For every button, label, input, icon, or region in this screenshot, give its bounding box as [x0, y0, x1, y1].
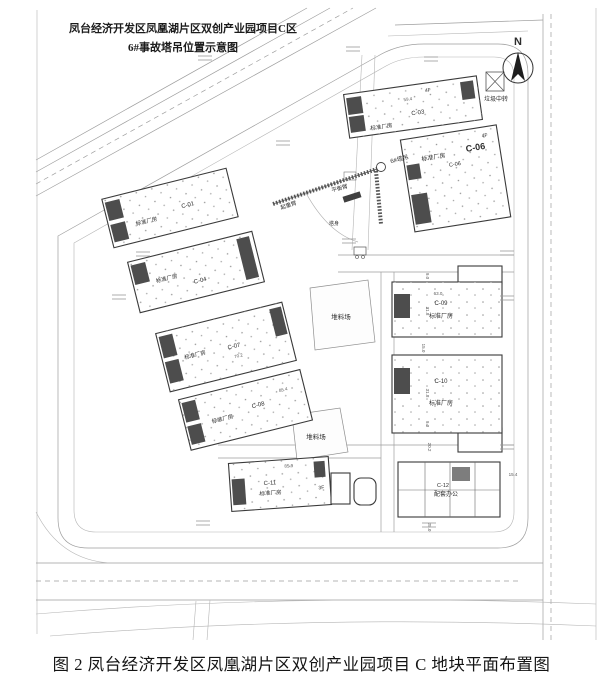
stockyard-upper: 堆料场: [310, 280, 375, 350]
building-c01: 标准厂房 C-01: [102, 168, 238, 247]
stockyard-lower-label: 堆料场: [306, 432, 326, 441]
c10-dim-side: 31.8: [425, 389, 430, 398]
c10-type-label: 标准厂房: [429, 399, 453, 407]
building-c09: C-09 标准厂房 63.0 31.8 9.0: [392, 266, 502, 337]
c10-dim-gap: 15.0: [421, 344, 426, 353]
c11-dim-label: 85.9: [284, 463, 294, 469]
building-c04: 标准厂房 C-04: [128, 231, 265, 312]
plan-title-line2: 6#事故塔吊位置示意图: [62, 39, 304, 58]
c09-dim-side: 31.8: [425, 307, 430, 316]
c09-dim-top: 63.0: [434, 291, 443, 296]
c11-floors-label: 3F: [318, 485, 324, 491]
c09-type-label: 标准厂房: [429, 312, 453, 320]
crane-mast-label: 塔身: [329, 220, 339, 227]
north-label: N: [514, 36, 522, 48]
c09-id-label: C-09: [434, 301, 448, 307]
north-compass: N: [503, 36, 533, 83]
crane-mast: [376, 171, 381, 224]
c11-annex-blocks: [331, 473, 376, 505]
vehicle-marker: [354, 247, 366, 259]
building-c10: C-10 标准厂房 31.8 9.0 15.0: [392, 344, 502, 452]
garbage-transfer-station: 垃圾中转: [484, 72, 508, 103]
stockyard-upper-label: 堆料场: [331, 312, 351, 321]
building-c03: 标准厂房 C-03 59.4 4F: [344, 76, 483, 138]
c12-id-label: C-12: [437, 483, 449, 489]
c09-dim-offset: 9.0: [425, 273, 430, 280]
plan-title-block: 凤台经济开发区凤凰湖片区双创产业园项目C区 6#事故塔吊位置示意图: [62, 20, 304, 59]
site-plan-drawing: 堆料场 堆料场 标准厂房 C-01 标准厂房 C-04: [0, 0, 603, 646]
building-c12: C-12 配套办公 15.4 25.0 20.2: [398, 443, 518, 532]
c06-floors-label: 4F: [481, 132, 488, 139]
c10-id-label: C-10: [434, 379, 448, 385]
garbage-transfer-label: 垃圾中转: [484, 95, 508, 103]
c12-dim-right: 15.4: [509, 472, 518, 477]
crane-counterweight: [343, 191, 362, 202]
building-c06: 标准厂房 C-06 C-06 4F: [400, 125, 510, 232]
c10-dim-offset: 9.0: [425, 421, 430, 428]
c11-id-label: C-11: [263, 480, 277, 487]
c03-floors-label: 4F: [425, 87, 432, 94]
c12-type-label: 配套办公: [434, 490, 458, 498]
north-arrow-icon: [511, 52, 525, 81]
building-c11: C-11 标准厂房 3F 85.9: [228, 457, 331, 512]
tower-crane-6: 起重臂 平衡臂 塔身 6#塔吊: [273, 153, 410, 242]
figure-caption: 图 2 凤台经济开发区凤凰湖片区双创产业园项目 C 地块平面布置图: [0, 651, 603, 675]
crane-jib-chord: [273, 168, 380, 204]
document-page: 堆料场 堆料场 标准厂房 C-01 标准厂房 C-04: [0, 0, 603, 696]
c12-dim-top: 20.2: [427, 443, 432, 452]
plan-title-line1: 凤台经济开发区凤凰湖片区双创产业园项目C区: [62, 20, 304, 39]
crane-slewing-unit: [377, 163, 386, 172]
